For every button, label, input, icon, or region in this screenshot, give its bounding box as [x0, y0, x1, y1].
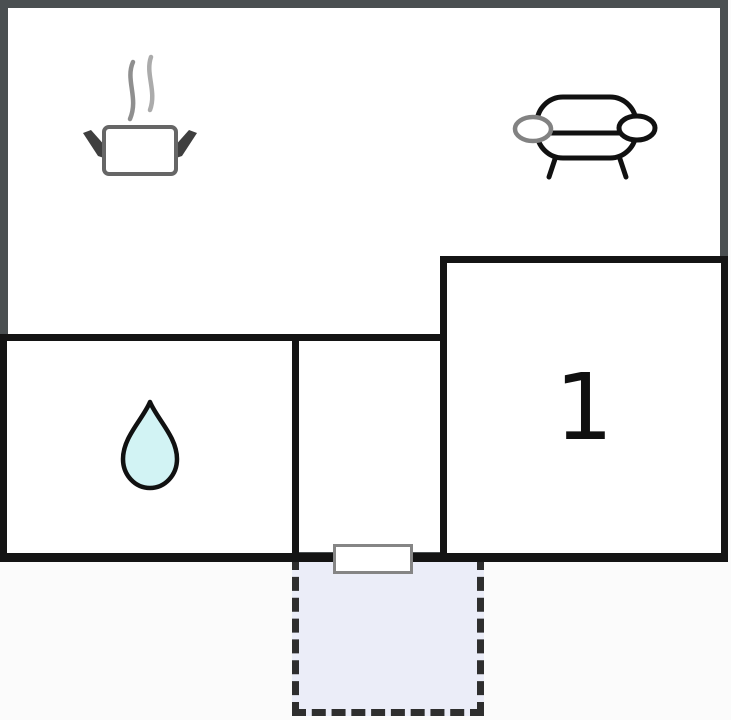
sofa-icon — [505, 88, 670, 188]
door-opening — [333, 544, 413, 574]
sofa-armrest-left — [515, 117, 551, 141]
terrace — [292, 556, 484, 716]
bedroom-number-label: 1 — [440, 256, 728, 560]
bedroom-number: 1 — [555, 362, 614, 454]
pot-body — [104, 127, 176, 174]
steam-line-right — [149, 57, 152, 110]
sofa-leg-right — [619, 156, 626, 177]
water-drop-shape — [123, 402, 177, 488]
water-drop-icon — [112, 392, 188, 502]
cooking-pot-icon — [75, 48, 205, 183]
steam-line-left — [130, 62, 133, 119]
floorplan-canvas: 1 — [0, 0, 731, 720]
sofa-armrest-right — [619, 116, 655, 140]
